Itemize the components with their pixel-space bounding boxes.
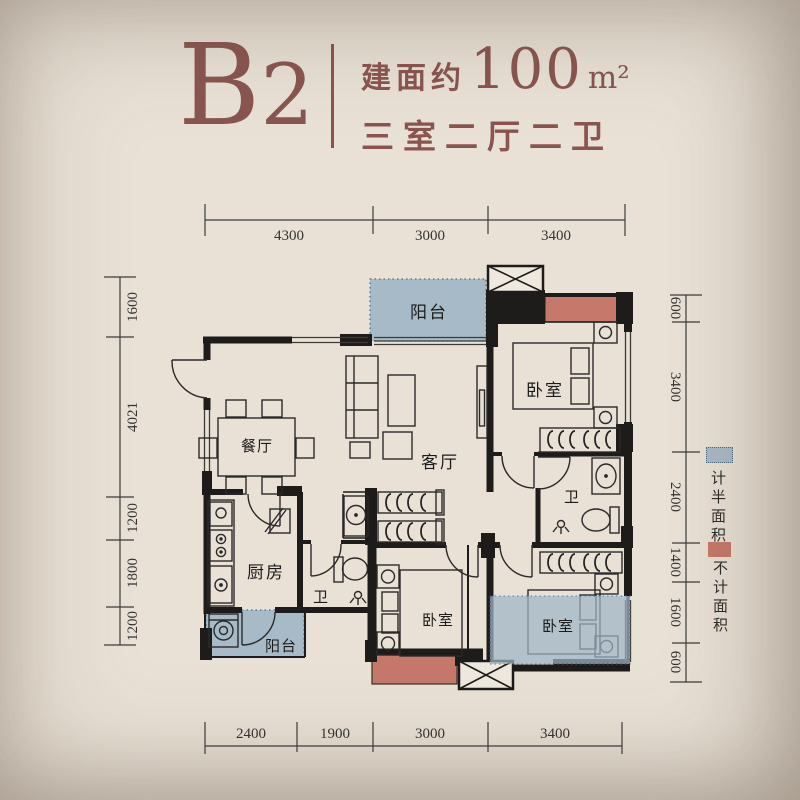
dim-bottom-3: 3400 — [540, 726, 570, 742]
dim-right-5: 600 — [667, 651, 683, 674]
bed-master — [513, 322, 617, 428]
bath2-door — [311, 544, 341, 576]
dim-bottom-1: 1900 — [320, 726, 350, 742]
label-living: 客厅 — [421, 453, 459, 472]
kitchen-counter — [208, 500, 290, 606]
label-balcony-top: 阳台 — [410, 303, 448, 322]
dim-right-3: 1400 — [667, 547, 683, 577]
legend-half-area-label: 计半面积 — [710, 470, 725, 546]
corridor-closets — [344, 490, 444, 544]
tv-cabinet — [477, 366, 487, 438]
bath1-door — [538, 457, 570, 489]
shaft-box-top — [488, 266, 543, 292]
legend-excluded-area-label: 不计面积 — [712, 560, 727, 636]
dim-left-0: 1600 — [125, 292, 141, 322]
legend-half-area-swatch — [706, 447, 733, 463]
dim-right-4: 1600 — [667, 597, 683, 627]
label-bedroom-3: 卧室 — [542, 618, 574, 635]
dim-left-1: 4021 — [125, 402, 141, 432]
dim-left-3: 1800 — [125, 558, 141, 588]
dim-left-4: 1200 — [125, 611, 141, 641]
label-kitchen: 厨房 — [247, 563, 285, 582]
kitchen-door — [248, 494, 280, 526]
dim-top-0: 4300 — [274, 228, 304, 244]
legend-excluded-area-swatch — [708, 542, 731, 557]
shaft-box-bottom — [459, 661, 513, 689]
entry-door — [172, 360, 207, 398]
bed-2 — [377, 565, 462, 656]
dim-top-1: 3000 — [415, 228, 445, 244]
label-bath-2: 卫 — [313, 589, 329, 606]
label-dining: 餐厅 — [241, 438, 273, 455]
bedroom1-door — [502, 456, 534, 488]
dim-bottom-0: 2400 — [236, 726, 266, 742]
label-bath-1: 卫 — [564, 489, 580, 506]
dim-left-2: 1200 — [125, 503, 141, 533]
bedroom3-door — [500, 545, 532, 577]
floor-plan: 阳台 卧室 餐厅 客厅 厨房 卫 卫 阳台 卧室 卧室 4300 3000 34… — [0, 0, 800, 800]
dim-bottom-2: 3000 — [415, 726, 445, 742]
dim-right-2: 2400 — [667, 482, 683, 512]
dim-right-1: 3400 — [667, 372, 683, 402]
label-bedroom-2: 卧室 — [422, 612, 454, 629]
dim-top-2: 3400 — [541, 228, 571, 244]
bath2-fixtures — [334, 557, 368, 605]
wardrobe-3 — [540, 552, 622, 573]
wardrobe-master — [540, 428, 620, 452]
sofa-set — [346, 356, 415, 459]
dim-right-0: 600 — [667, 297, 683, 320]
label-balcony-bottom: 阳台 — [265, 638, 297, 655]
label-bedroom-master: 卧室 — [526, 381, 564, 400]
